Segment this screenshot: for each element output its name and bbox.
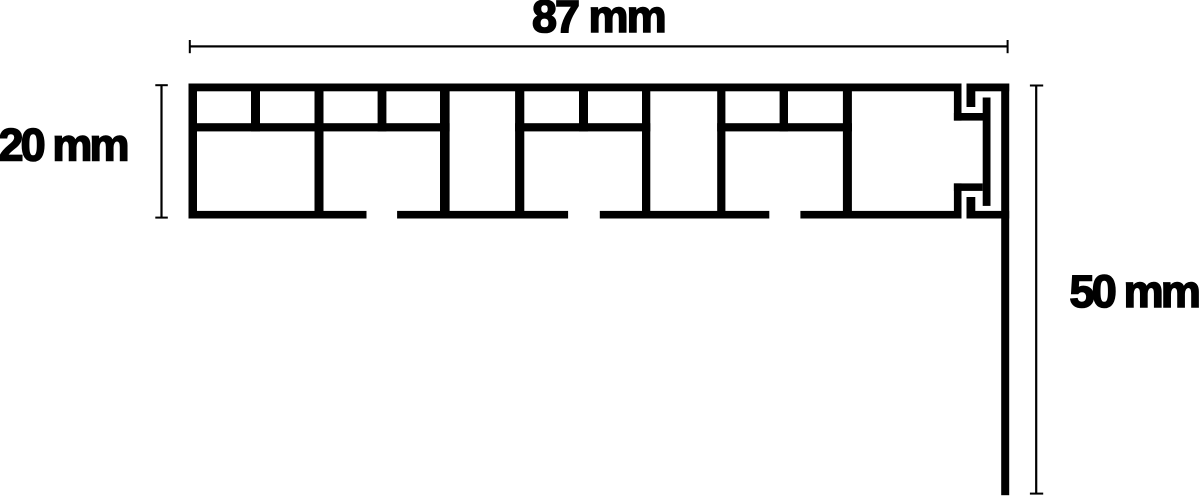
svg-text:87 mm: 87 mm (532, 0, 665, 42)
svg-text:50 mm: 50 mm (1070, 266, 1199, 317)
svg-text:20 mm: 20 mm (0, 119, 127, 170)
